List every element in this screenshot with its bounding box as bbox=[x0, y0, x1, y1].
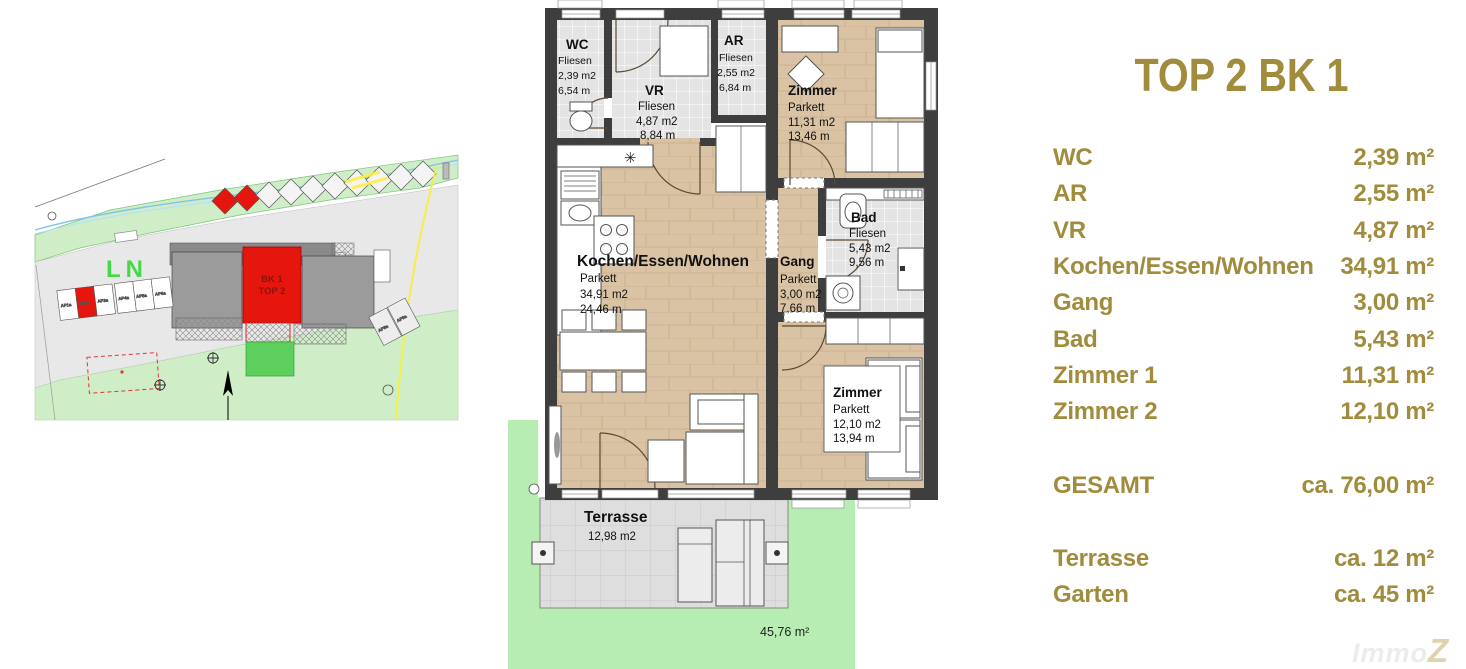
room-name: Bad bbox=[851, 210, 877, 225]
summary-row: Garten ca. 45 m² bbox=[1053, 577, 1434, 613]
terrace-post-icon bbox=[532, 542, 554, 564]
unit-title: TOP 2 BK 1 bbox=[1073, 48, 1411, 102]
highlight-unit bbox=[243, 247, 301, 323]
room-label: WC bbox=[1053, 144, 1092, 172]
washing-machine-icon bbox=[826, 276, 860, 310]
room-label: AR bbox=[1053, 180, 1087, 208]
room-area: 12,10 m2 bbox=[833, 419, 881, 431]
wardrobe bbox=[846, 122, 924, 172]
summary-row: Zimmer 2 12,10 m² bbox=[1053, 394, 1434, 430]
summary-row: AR 2,55 m² bbox=[1053, 176, 1434, 212]
floor-plan: 45,76 m² Terrasse 12,98 m2 bbox=[505, 0, 950, 669]
vent-symbol: ✳ bbox=[624, 150, 637, 167]
room-label: Zimmer 1 bbox=[1053, 362, 1157, 390]
summary-row: Terrasse ca. 12 m² bbox=[1053, 541, 1434, 577]
room-name: Gang bbox=[780, 254, 815, 269]
building-right bbox=[302, 256, 374, 328]
site-plan-map: BK 1 TOP 2 AP1a AP2a AP3a AP4a AP5a AP6a bbox=[30, 145, 460, 425]
terrace-value: ca. 12 m² bbox=[1334, 545, 1434, 573]
room-area: 11,31 m2 bbox=[788, 117, 835, 129]
room-label: Kochen/Essen/Wohnen bbox=[1053, 253, 1314, 281]
room-name: Zimmer bbox=[788, 83, 838, 98]
outdoor-sofa bbox=[716, 520, 764, 606]
room-dim: 7,66 m bbox=[780, 303, 815, 315]
total-label: GESAMT bbox=[1053, 472, 1154, 500]
terrace-label: Terrasse bbox=[584, 509, 648, 526]
room-dim: 24,46 m bbox=[580, 304, 622, 316]
room-floor: Parkett bbox=[780, 274, 817, 286]
buildings: BK 1 TOP 2 bbox=[170, 243, 390, 328]
bed-single bbox=[876, 28, 924, 118]
radiator-icon bbox=[884, 190, 922, 198]
room-dim: 9,56 m bbox=[849, 257, 884, 269]
room-value: 2,39 m² bbox=[1353, 144, 1434, 172]
annex bbox=[374, 250, 390, 282]
room-dim: 13,46 m bbox=[788, 131, 830, 143]
room-value: 12,10 m² bbox=[1340, 398, 1434, 426]
outdoor-rows: Terrasse ca. 12 m² Garten ca. 45 m² bbox=[1053, 541, 1434, 614]
room-value: 3,00 m² bbox=[1353, 289, 1434, 317]
room-area: 5,43 m2 bbox=[849, 243, 891, 255]
room-area-table: WC 2,39 m² AR 2,55 m² VR 4,87 m² Kochen/… bbox=[1053, 140, 1434, 430]
room-floor: Parkett bbox=[833, 404, 870, 416]
total-row: GESAMT ca. 76,00 m² bbox=[1053, 468, 1434, 504]
lounge-chair bbox=[678, 528, 712, 602]
terrace: Terrasse 12,98 m2 bbox=[529, 484, 788, 608]
terrace-label: Terrasse bbox=[1053, 545, 1149, 573]
brand-watermark: ImmoZ bbox=[1352, 632, 1449, 669]
garden-value: ca. 45 m² bbox=[1334, 581, 1434, 609]
dresser bbox=[782, 26, 838, 52]
room-label: Gang bbox=[1053, 289, 1113, 317]
terrace-hatch-left bbox=[176, 318, 242, 340]
terrace-hatch-unit bbox=[246, 322, 290, 342]
room-area: 2,39 m2 bbox=[558, 70, 596, 82]
room-area: 34,91 m2 bbox=[580, 289, 628, 301]
room-name: VR bbox=[645, 83, 664, 98]
building-left bbox=[172, 252, 242, 328]
private-garden bbox=[246, 342, 294, 376]
room-floor: Fliesen bbox=[849, 228, 886, 240]
room-dim: 6,84 m bbox=[719, 82, 751, 94]
summary-row: VR 4,87 m² bbox=[1053, 213, 1434, 249]
room-name: Zimmer bbox=[833, 385, 883, 400]
summary-row: WC 2,39 m² bbox=[1053, 140, 1434, 176]
summary-row: Kochen/Essen/Wohnen 34,91 m² bbox=[1053, 249, 1434, 285]
watermark-text: Immo bbox=[1352, 638, 1428, 668]
room-label: VR bbox=[1053, 217, 1086, 245]
room-floor: Fliesen bbox=[558, 55, 592, 67]
room-value: 2,55 m² bbox=[1353, 180, 1434, 208]
room-label: Zimmer 2 bbox=[1053, 398, 1157, 426]
living-closet bbox=[716, 126, 766, 192]
watermark-accent: Z bbox=[1428, 632, 1449, 669]
terrace-area: 12,98 m2 bbox=[588, 531, 636, 543]
unit-label-line1: BK 1 bbox=[261, 274, 283, 285]
summary-panel: TOP 2 BK 1 WC 2,39 m² AR 2,55 m² VR 4,87… bbox=[1045, 48, 1438, 608]
room-area: 2,55 m2 bbox=[717, 67, 755, 79]
boundary-line bbox=[35, 159, 165, 207]
room-value: 4,87 m² bbox=[1353, 217, 1434, 245]
survey-point bbox=[48, 212, 56, 220]
dining-table bbox=[560, 310, 646, 392]
garden-area-label: 45,76 m² bbox=[760, 625, 809, 639]
summary-row: Gang 3,00 m² bbox=[1053, 285, 1434, 321]
room-dim: 6,54 m bbox=[558, 85, 590, 97]
room-dim: 13,94 m bbox=[833, 433, 875, 445]
room-value: 34,91 m² bbox=[1340, 253, 1434, 281]
vr-closet bbox=[660, 26, 708, 76]
room-dim: 8,84 m bbox=[640, 130, 675, 142]
wardrobe-2 bbox=[826, 318, 924, 344]
tv-unit bbox=[549, 406, 561, 484]
room-name: AR bbox=[724, 33, 744, 48]
room-floor: Parkett bbox=[580, 273, 617, 285]
room-area: 4,87 m2 bbox=[636, 116, 678, 128]
room-value: 5,43 m² bbox=[1353, 326, 1434, 354]
total-value: ca. 76,00 m² bbox=[1302, 472, 1435, 500]
post-marker bbox=[443, 163, 449, 179]
terrace-hatch-right bbox=[294, 324, 346, 344]
flyer-canvas: BK 1 TOP 2 AP1a AP2a AP3a AP4a AP5a AP6a bbox=[0, 0, 1466, 669]
room-value: 11,31 m² bbox=[1342, 362, 1434, 390]
room-name: Kochen/Essen/Wohnen bbox=[577, 253, 749, 270]
utility-node bbox=[383, 385, 393, 395]
summary-row: Zimmer 1 11,31 m² bbox=[1053, 358, 1434, 394]
summary-row: Bad 5,43 m² bbox=[1053, 321, 1434, 357]
zone-label: LN bbox=[106, 256, 148, 283]
terrace-post-icon bbox=[766, 542, 788, 564]
room-name: WC bbox=[566, 37, 589, 52]
garden-label: Garten bbox=[1053, 581, 1129, 609]
drain-icon bbox=[529, 484, 539, 494]
room-label: Bad bbox=[1053, 326, 1097, 354]
toilet-icon bbox=[570, 102, 592, 131]
room-floor: Fliesen bbox=[638, 101, 675, 113]
sink-icon bbox=[561, 171, 599, 225]
room-floor: Fliesen bbox=[719, 52, 753, 64]
room-area: 3,00 m2 bbox=[780, 289, 822, 301]
bath-window bbox=[898, 248, 924, 290]
unit-label-line2: TOP 2 bbox=[258, 286, 285, 297]
room-floor: Parkett bbox=[788, 102, 825, 114]
